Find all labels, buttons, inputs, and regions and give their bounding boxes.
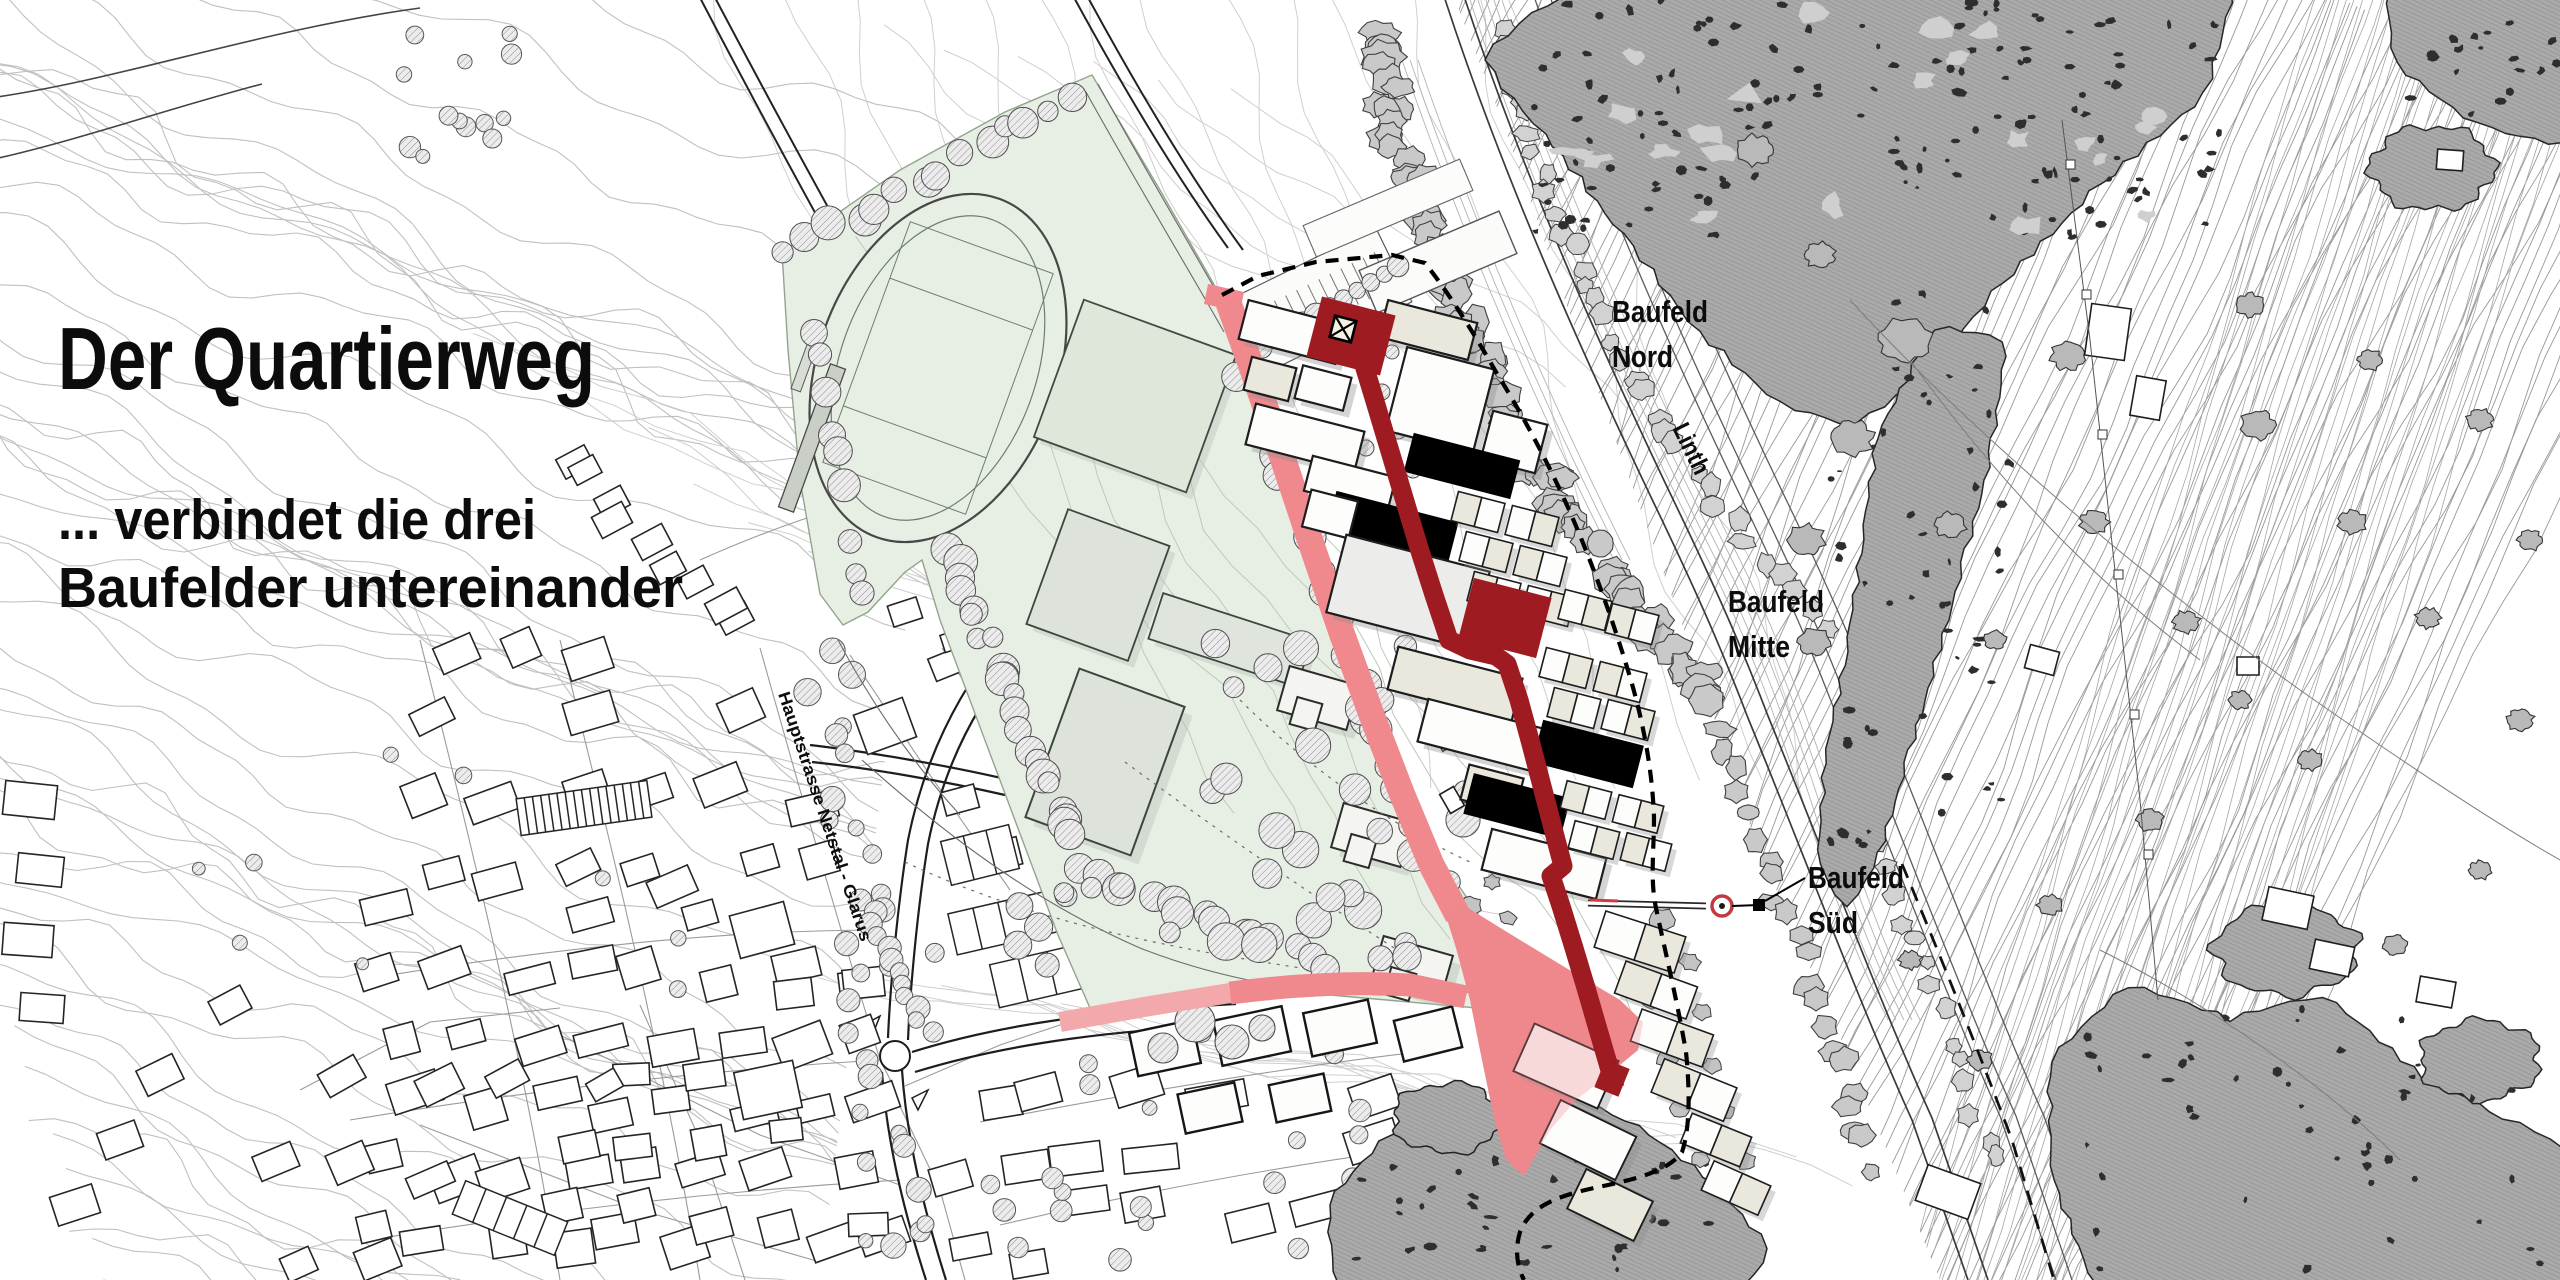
svg-text:... verbindet die drei: ... verbindet die drei bbox=[58, 488, 536, 552]
svg-text:Der Quartierweg: Der Quartierweg bbox=[58, 309, 595, 408]
svg-text:Süd: Süd bbox=[1808, 905, 1858, 940]
svg-text:Baufelder untereinander: Baufelder untereinander bbox=[58, 556, 683, 620]
svg-text:Baufeld: Baufeld bbox=[1808, 860, 1904, 895]
svg-text:Mitte: Mitte bbox=[1728, 629, 1790, 664]
svg-text:Baufeld: Baufeld bbox=[1612, 294, 1708, 329]
svg-text:Nord: Nord bbox=[1612, 339, 1673, 374]
svg-text:Baufeld: Baufeld bbox=[1728, 584, 1824, 619]
